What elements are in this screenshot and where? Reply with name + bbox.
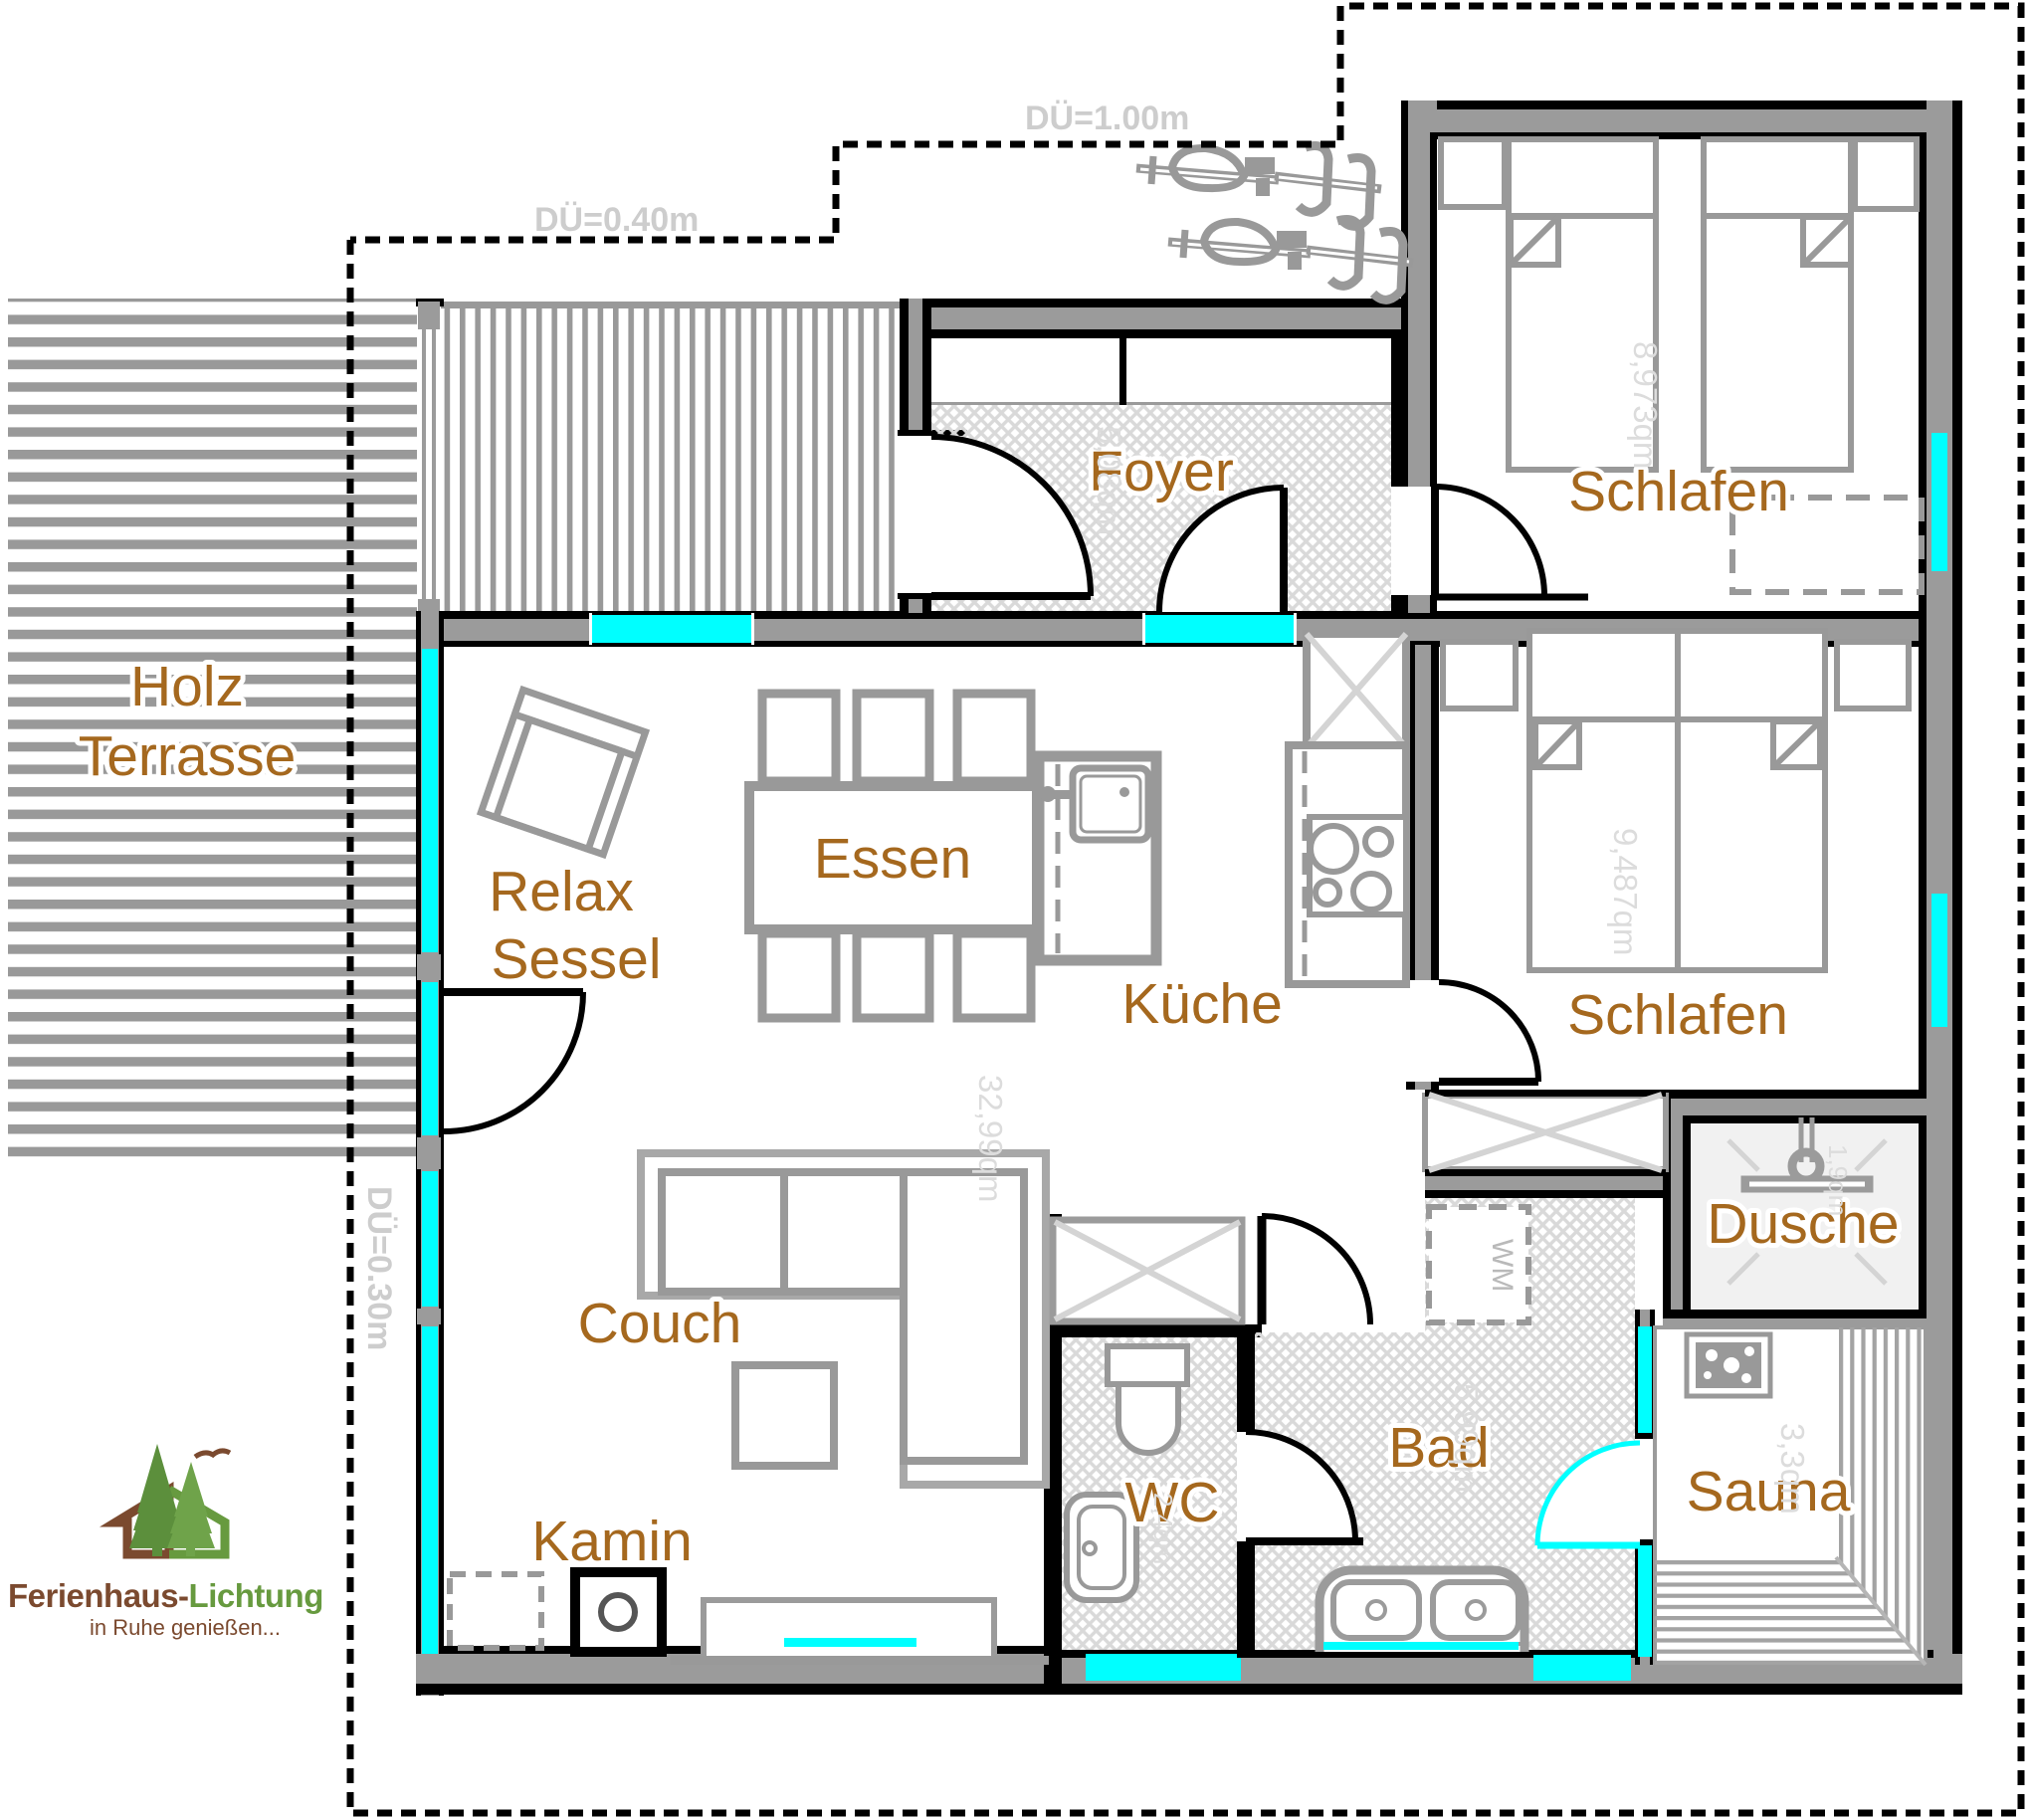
svg-text:DÜ=0.30m: DÜ=0.30m — [360, 1186, 398, 1350]
svg-text:Sessel: Sessel — [491, 927, 661, 991]
svg-text:5,99qm: 5,99qm — [1448, 1383, 1485, 1493]
svg-text:WM: WM — [1486, 1239, 1519, 1292]
svg-text:9,487qm: 9,487qm — [1607, 828, 1644, 955]
svg-text:Terrasse: Terrasse — [79, 724, 297, 788]
svg-text:DÜ=1.00m: DÜ=1.00m — [1025, 100, 1189, 137]
svg-text:Relax: Relax — [489, 860, 634, 923]
svg-text:Kamin: Kamin — [531, 1510, 693, 1573]
svg-text:Sauna: Sauna — [1687, 1460, 1851, 1523]
svg-text:Küche: Küche — [1121, 972, 1283, 1036]
svg-text:3,3qm: 3,3qm — [1774, 1423, 1811, 1515]
svg-text:2,4qm: 2,4qm — [1148, 1493, 1178, 1564]
svg-text:Ferienhaus-Lichtung: Ferienhaus-Lichtung — [8, 1577, 323, 1614]
svg-text:Holz: Holz — [130, 655, 244, 718]
svg-text:1,9qm: 1,9qm — [1823, 1144, 1853, 1216]
svg-text:DÜ=0.40m: DÜ=0.40m — [534, 201, 699, 239]
svg-text:in Ruhe genießen...: in Ruhe genießen... — [90, 1615, 281, 1640]
svg-text:5,08qm: 5,08qm — [1091, 426, 1127, 535]
svg-text:Schlafen: Schlafen — [1568, 460, 1789, 523]
svg-text:8,973qm: 8,973qm — [1627, 341, 1664, 469]
svg-text:Schlafen: Schlafen — [1567, 983, 1788, 1047]
svg-text:Couch: Couch — [578, 1292, 742, 1355]
svg-text:32,99qm: 32,99qm — [972, 1075, 1009, 1202]
svg-text:Essen: Essen — [814, 827, 971, 891]
svg-text:Dusche: Dusche — [1707, 1192, 1899, 1256]
